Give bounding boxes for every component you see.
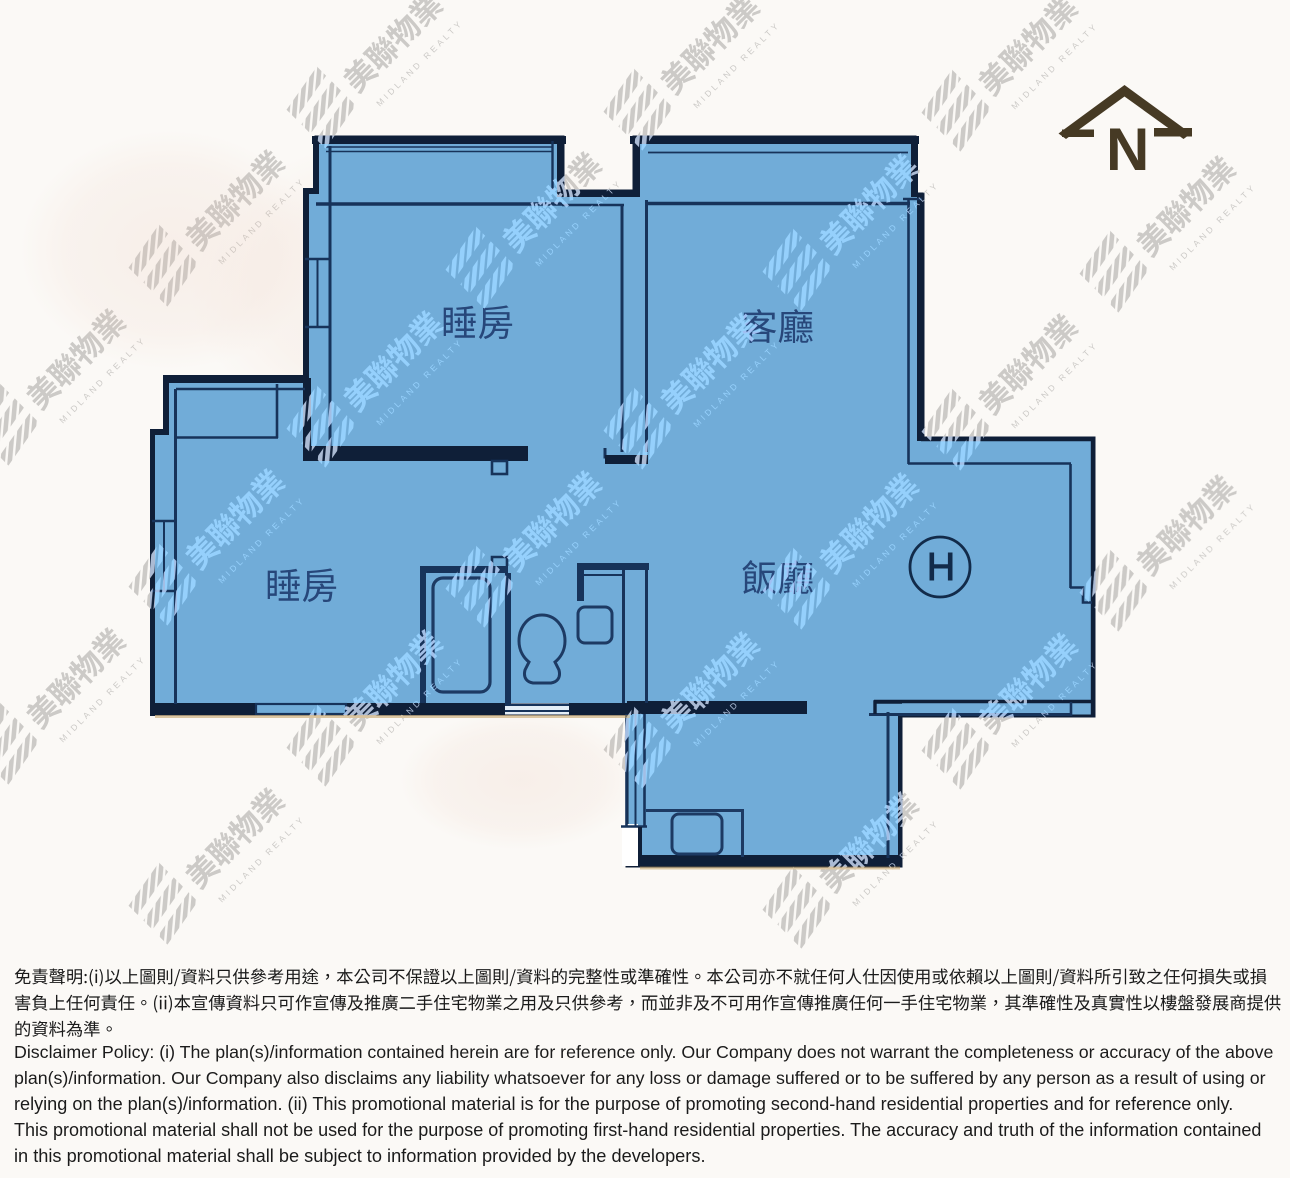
svg-text:Disclaimer Policy: (i) The pla: Disclaimer Policy: (i) The plan(s)/infor… — [14, 1042, 1274, 1062]
svg-text:plan(s)/information. Our Compa: plan(s)/information. Our Company also di… — [14, 1068, 1266, 1088]
svg-text:relying on the plan(s)/informa: relying on the plan(s)/information. (ii)… — [14, 1094, 1233, 1114]
svg-text:in this promotional material s: in this promotional material shall be su… — [14, 1146, 706, 1166]
svg-text:This promotional material shal: This promotional material shall not be u… — [14, 1120, 1261, 1140]
svg-text:N: N — [1106, 116, 1149, 183]
